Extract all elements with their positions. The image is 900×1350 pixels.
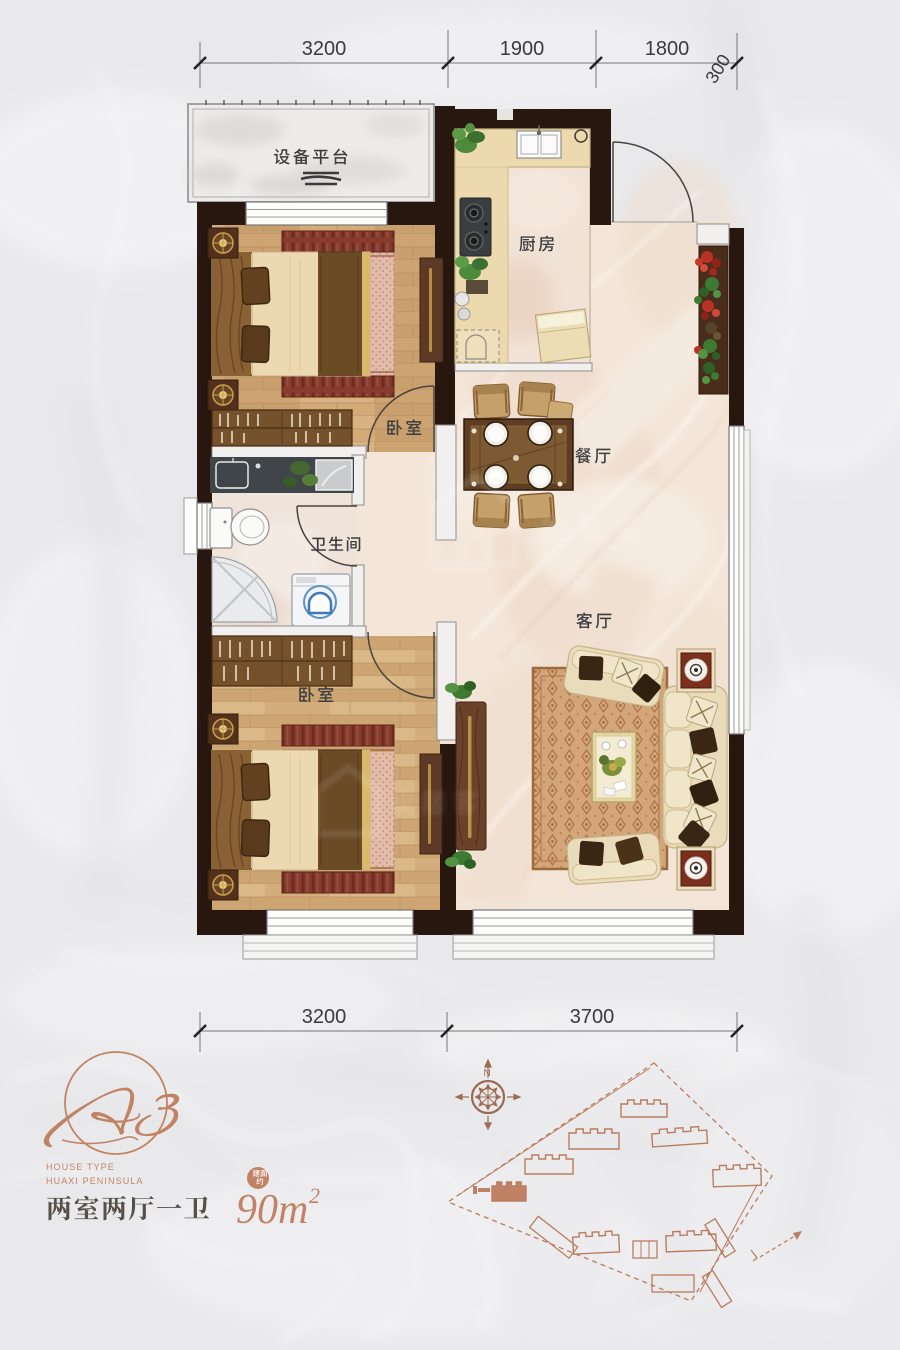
svg-text:90m: 90m bbox=[236, 1187, 308, 1233]
svg-text:HOUSE TYPE: HOUSE TYPE bbox=[46, 1162, 115, 1172]
svg-text:3200: 3200 bbox=[302, 38, 347, 60]
svg-text:N: N bbox=[484, 1068, 491, 1079]
svg-text:2: 2 bbox=[309, 1183, 320, 1208]
svg-text:3700: 3700 bbox=[570, 1006, 615, 1028]
svg-text:3200: 3200 bbox=[302, 1006, 347, 1028]
svg-text:1800: 1800 bbox=[645, 38, 690, 60]
svg-text:HUAXI PENINSULA: HUAXI PENINSULA bbox=[46, 1176, 144, 1186]
svg-text:1900: 1900 bbox=[500, 38, 545, 60]
